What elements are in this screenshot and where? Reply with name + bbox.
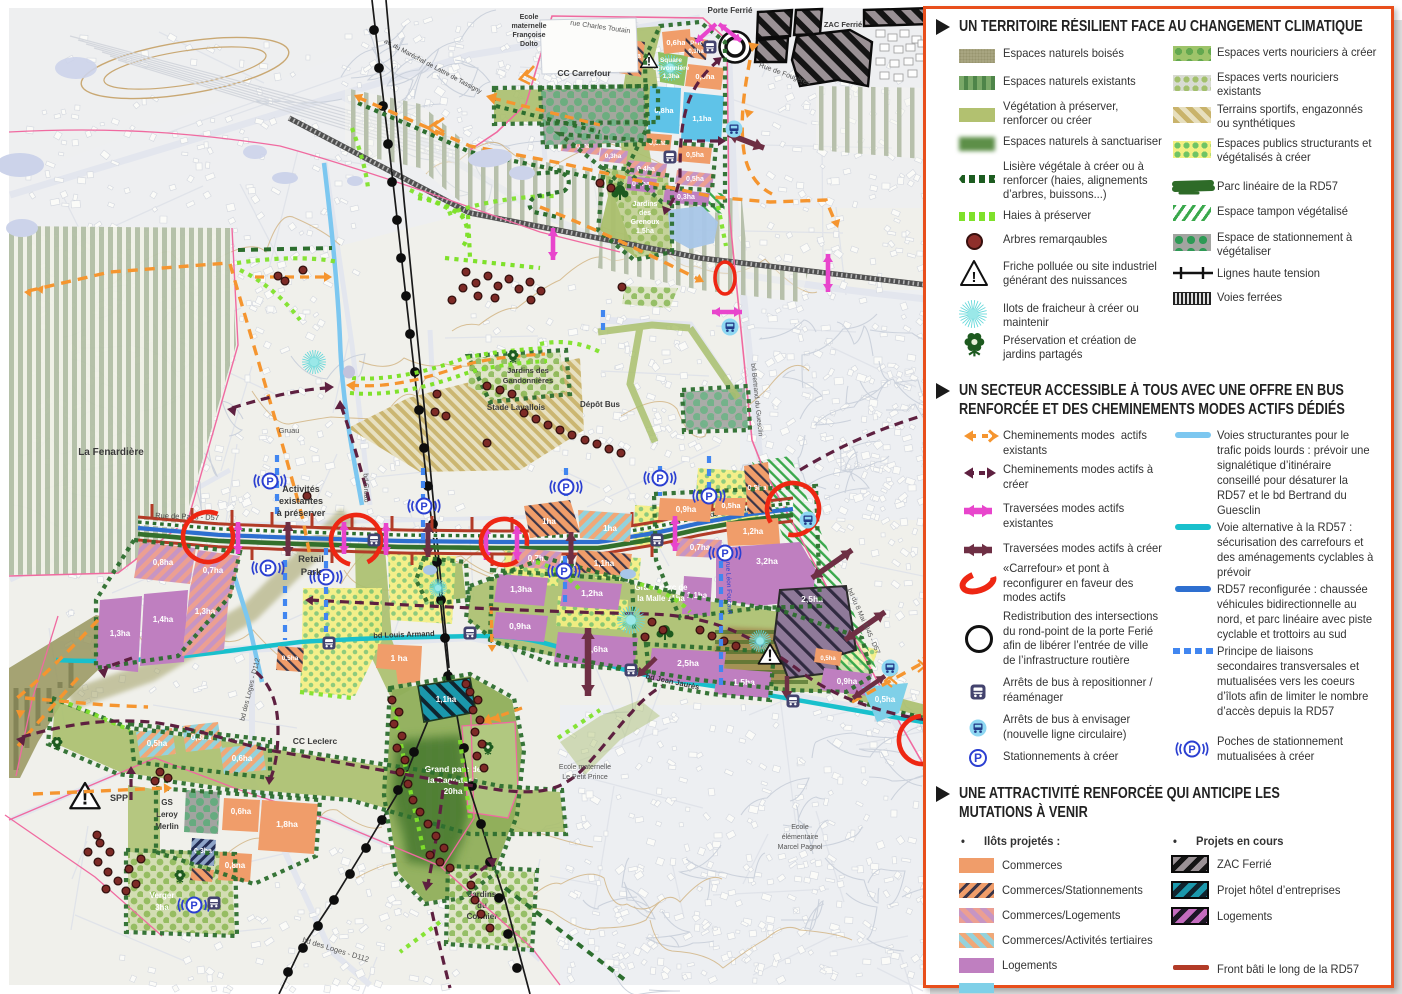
svg-text:0,6ha: 0,6ha: [231, 807, 252, 816]
svg-text:P: P: [264, 563, 271, 575]
svg-text:0,5ha: 0,5ha: [147, 739, 168, 748]
svg-text:20ha: 20ha: [443, 786, 462, 796]
svg-text:Leroy: Leroy: [156, 810, 178, 819]
svg-text:1 ha: 1 ha: [390, 653, 407, 663]
svg-text:maternelle: maternelle: [511, 23, 546, 30]
svg-text:P: P: [1188, 744, 1195, 756]
svg-text:Marcel Pagnol: Marcel Pagnol: [778, 844, 823, 851]
svg-text:P: P: [322, 572, 329, 584]
svg-text:Ecole: Ecole: [520, 14, 539, 21]
svg-text:des: des: [639, 210, 651, 217]
svg-text:Ecole: Ecole: [791, 824, 809, 831]
svg-text:P: P: [560, 566, 567, 578]
svg-text:P: P: [656, 473, 663, 485]
svg-text:!: !: [767, 647, 773, 665]
svg-text:0,6ha: 0,6ha: [232, 754, 253, 763]
svg-text:1,3ha: 1,3ha: [663, 73, 680, 80]
svg-text:Jardins: Jardins: [633, 201, 658, 208]
svg-text:1ha: 1ha: [603, 524, 617, 533]
svg-text:P: P: [562, 482, 569, 494]
svg-text:!: !: [972, 269, 977, 286]
svg-text:0,5ha: 0,5ha: [721, 501, 741, 510]
svg-text:0,5ha: 0,5ha: [747, 483, 767, 492]
svg-text:3ha: 3ha: [155, 903, 169, 912]
svg-text:0,8ha: 0,8ha: [153, 558, 174, 567]
svg-text:Merlin: Merlin: [155, 822, 179, 831]
svg-text:0,7ha: 0,7ha: [203, 566, 224, 575]
svg-text:1,8ha: 1,8ha: [276, 819, 298, 829]
svg-text:2,5ha: 2,5ha: [677, 658, 699, 668]
svg-text:Dolto: Dolto: [520, 41, 538, 48]
svg-text:0,9ha: 0,9ha: [509, 621, 531, 631]
svg-text:Gruau: Gruau: [279, 426, 300, 435]
svg-text:P: P: [974, 751, 982, 765]
svg-text:Le Petit Prince: Le Petit Prince: [562, 774, 608, 781]
svg-text:0,5ha: 0,5ha: [686, 176, 704, 183]
svg-text:Françoise: Françoise: [512, 32, 545, 39]
svg-text:1ha: 1ha: [542, 517, 556, 526]
svg-text:GS: GS: [161, 798, 173, 807]
svg-text:CC Carrefour: CC Carrefour: [557, 68, 611, 78]
svg-text:P: P: [705, 491, 712, 503]
svg-text:Park: Park: [301, 567, 322, 578]
svg-text:Grivonnière: Grivonnière: [653, 65, 690, 72]
svg-text:CC Leclerc: CC Leclerc: [293, 736, 338, 746]
svg-text:La Fenardière: La Fenardière: [78, 447, 144, 458]
svg-text:0,6ha: 0,6ha: [666, 38, 686, 47]
svg-text:1,5ha: 1,5ha: [636, 228, 654, 235]
svg-text:élémentaire: élémentaire: [782, 834, 819, 841]
svg-text:Ecole maternelle: Ecole maternelle: [559, 764, 611, 771]
svg-text:0,5ha: 0,5ha: [282, 655, 299, 662]
svg-text:0,5ha: 0,5ha: [820, 656, 836, 662]
svg-text:bd Gruau: bd Gruau: [361, 473, 369, 503]
svg-text:3,2ha: 3,2ha: [756, 556, 778, 566]
svg-text:Activités: Activités: [282, 484, 320, 494]
svg-text:0,9ha: 0,9ha: [676, 505, 697, 514]
svg-text:à préserver: à préserver: [277, 508, 326, 518]
svg-text:Gandonnières: Gandonnières: [503, 376, 553, 385]
svg-text:P: P: [190, 900, 197, 912]
svg-text:1,2ha: 1,2ha: [581, 588, 603, 598]
svg-text:1,1ha: 1,1ha: [594, 559, 615, 568]
svg-text:Dépôt Bus: Dépôt Bus: [580, 400, 621, 409]
svg-text:1,3ha: 1,3ha: [110, 629, 131, 638]
svg-text:0,3ha: 0,3ha: [605, 153, 622, 160]
svg-text:ZAC Ferrié: ZAC Ferrié: [824, 20, 862, 29]
svg-text:0,5ha: 0,5ha: [686, 152, 704, 159]
svg-text:Retail: Retail: [298, 554, 324, 565]
svg-text:Grenoux: Grenoux: [631, 219, 660, 226]
svg-text:0,3ha: 0,3ha: [688, 49, 704, 55]
svg-text:P: P: [266, 476, 273, 488]
svg-text:0,9ha: 0,9ha: [837, 677, 858, 686]
svg-text:P: P: [420, 501, 427, 513]
svg-text:Stade Lavallois: Stade Lavallois: [487, 403, 546, 412]
svg-text:SPP: SPP: [110, 793, 128, 803]
svg-text:la Malle 11ha: la Malle 11ha: [637, 594, 685, 603]
svg-text:1,2ha: 1,2ha: [743, 527, 764, 536]
svg-text:0,3ha: 0,3ha: [677, 194, 695, 201]
svg-text:Jardins des: Jardins des: [507, 366, 549, 375]
svg-text:1,1ha: 1,1ha: [692, 114, 712, 123]
svg-text:P: P: [721, 548, 728, 560]
svg-text:Square: Square: [660, 57, 682, 64]
svg-text:0,7ha: 0,7ha: [690, 543, 711, 552]
svg-text:1,4ha: 1,4ha: [153, 615, 174, 624]
svg-text:existantes: existantes: [279, 496, 323, 506]
svg-text:1,1ha: 1,1ha: [436, 695, 457, 704]
svg-text:Verger: Verger: [150, 891, 175, 900]
svg-text:Porte Ferrié: Porte Ferrié: [708, 6, 753, 15]
svg-text:1,3ha: 1,3ha: [510, 584, 532, 594]
svg-text:0,5ha: 0,5ha: [875, 695, 896, 704]
